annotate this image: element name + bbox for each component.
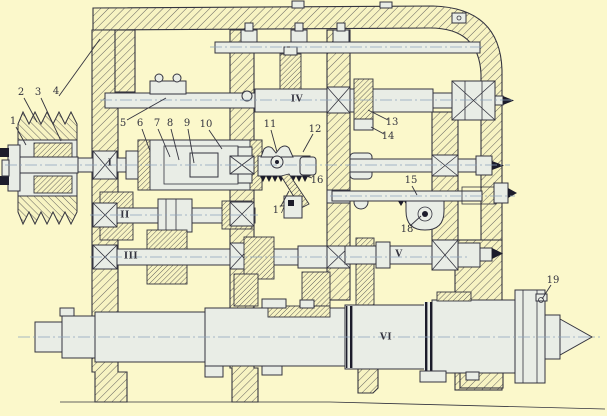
- bushing-item14: [354, 119, 373, 130]
- housing-left-wall-boss: [115, 30, 135, 92]
- gear-item13: [354, 79, 373, 119]
- drawing-canvas: [0, 0, 607, 416]
- part-label-17: 17: [273, 206, 286, 216]
- sliding-gear: [158, 199, 192, 232]
- part-label-11: 11: [264, 120, 277, 130]
- shaft-label-II: II: [120, 212, 129, 221]
- top-corner-bolt: [452, 13, 466, 23]
- part-label-9: 9: [184, 119, 190, 129]
- part-label-12: 12: [309, 125, 322, 135]
- part-label-1: 1: [10, 117, 16, 127]
- pulley-end-cap: [8, 145, 20, 191]
- part-label-7: 7: [154, 119, 160, 129]
- shaft-label-IV: IV: [291, 96, 303, 105]
- shaft-label-III: III: [124, 253, 138, 262]
- part-label-16: 16: [311, 176, 324, 186]
- shaft-label-V: V: [395, 251, 402, 260]
- part-label-5: 5: [120, 119, 126, 129]
- gearbox-sectional-drawing: 1 2 3 4 5 6 7 8 9 10 11 12 13 14 15 16 1…: [0, 0, 607, 416]
- gear-above-shaft-iv: [280, 54, 301, 89]
- gear-hub: [234, 274, 258, 306]
- hub: [376, 242, 390, 268]
- housing-foot: [358, 368, 378, 393]
- part-label-14: 14: [382, 132, 395, 142]
- top-cover-bolt: [380, 2, 392, 8]
- shaft-body: [350, 159, 482, 172]
- bearing-end-cap: [452, 81, 495, 120]
- part-label-3: 3: [35, 88, 41, 98]
- gear: [244, 237, 274, 279]
- bearing: [432, 155, 458, 176]
- bearing-band: [424, 302, 432, 371]
- shaft-label-I: I: [108, 160, 113, 169]
- part-label-4: 4: [53, 87, 59, 97]
- bearing: [230, 202, 254, 226]
- nut: [476, 156, 492, 175]
- bearing: [432, 240, 458, 270]
- spindle-flange: [515, 290, 545, 383]
- lever-bracket: [284, 196, 302, 218]
- ball-knob: [242, 91, 252, 101]
- part-label-18: 18: [401, 225, 414, 235]
- part-label-6: 6: [137, 119, 143, 129]
- shaft-label-VI: VI: [380, 334, 392, 343]
- top-cover-bolt: [292, 1, 304, 8]
- part-label-10: 10: [200, 120, 213, 130]
- barrel-cap: [300, 157, 316, 175]
- end-cap: [458, 243, 480, 267]
- part-label-8: 8: [167, 119, 173, 129]
- part-label-13: 13: [386, 118, 399, 128]
- part-label-2: 2: [18, 88, 24, 98]
- part-label-19: 19: [547, 276, 560, 286]
- part-label-15: 15: [405, 176, 418, 186]
